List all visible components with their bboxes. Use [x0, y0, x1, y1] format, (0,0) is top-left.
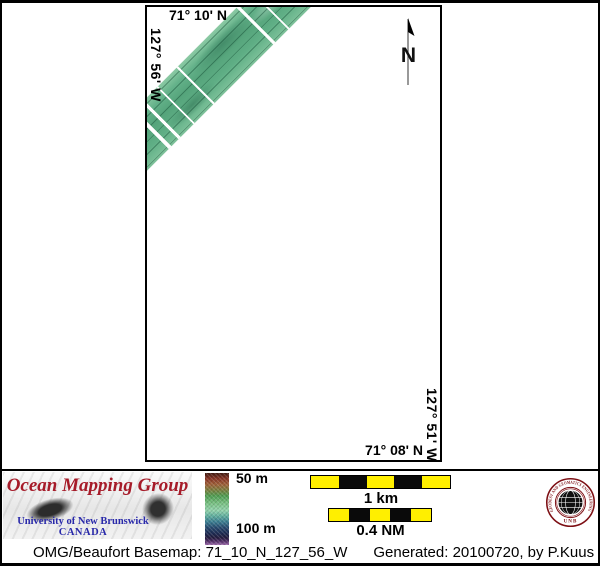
- multibeam-swath: [147, 7, 333, 196]
- scalebar-segment: [329, 509, 349, 521]
- scalebar-segment: [370, 509, 390, 521]
- seal-unb-text: UNB: [564, 519, 578, 525]
- north-arrow-icon: N: [393, 15, 423, 87]
- scalebar-segment: [411, 509, 431, 521]
- logo-title: Ocean Mapping Group: [3, 475, 192, 497]
- scalebar-segment: [390, 509, 410, 521]
- longitude-label-right: 127° 51' W: [425, 388, 439, 462]
- scalebar-segment: [311, 476, 339, 488]
- north-label: N: [401, 44, 416, 67]
- scalebar-segment: [339, 476, 367, 488]
- frame-top-line: [0, 0, 600, 3]
- scalebar-nm: [328, 508, 432, 522]
- colorbar-max-label: 100 m: [236, 521, 276, 536]
- longitude-label-left: 127° 56' W: [149, 28, 163, 102]
- map-frame: 71° 10' N 127° 56' W 127° 51' W 71° 08' …: [145, 5, 442, 462]
- logo-university: University of New Brunswick: [3, 516, 163, 527]
- unb-geomatics-seal-icon: GEODESY AND GEOMATICS ENGINEERING UNB: [545, 477, 596, 528]
- colorbar-min-label: 50 m: [236, 471, 268, 486]
- depth-colorbar: [205, 473, 229, 545]
- frame-left-line: [0, 0, 2, 566]
- globe-icon: [559, 491, 583, 515]
- scalebar-segment: [394, 476, 422, 488]
- scalebar-segment: [422, 476, 450, 488]
- basemap-page: 71° 10' N 127° 56' W 127° 51' W 71° 08' …: [0, 0, 600, 566]
- scalebar-segment: [367, 476, 395, 488]
- scalebar-km-label: 1 km: [310, 491, 452, 507]
- latitude-label-bottom: 71° 08' N: [365, 443, 423, 457]
- footer-basemap-text: OMG/Beaufort Basemap: 71_10_N_127_56_W: [33, 544, 347, 561]
- scalebar-segment: [349, 509, 369, 521]
- panel-separator-line: [0, 469, 600, 471]
- omg-logo: Ocean Mapping Group University of New Br…: [3, 472, 192, 539]
- scalebar-nm-label: 0.4 NM: [328, 523, 433, 539]
- scalebar-km: [310, 475, 451, 489]
- latitude-label-top: 71° 10' N: [169, 8, 227, 22]
- footer-generated-text: Generated: 20100720, by P.Kuus: [373, 544, 594, 561]
- footer-caption: OMG/Beaufort Basemap: 71_10_N_127_56_WGe…: [33, 544, 593, 561]
- logo-country: CANADA: [3, 527, 163, 538]
